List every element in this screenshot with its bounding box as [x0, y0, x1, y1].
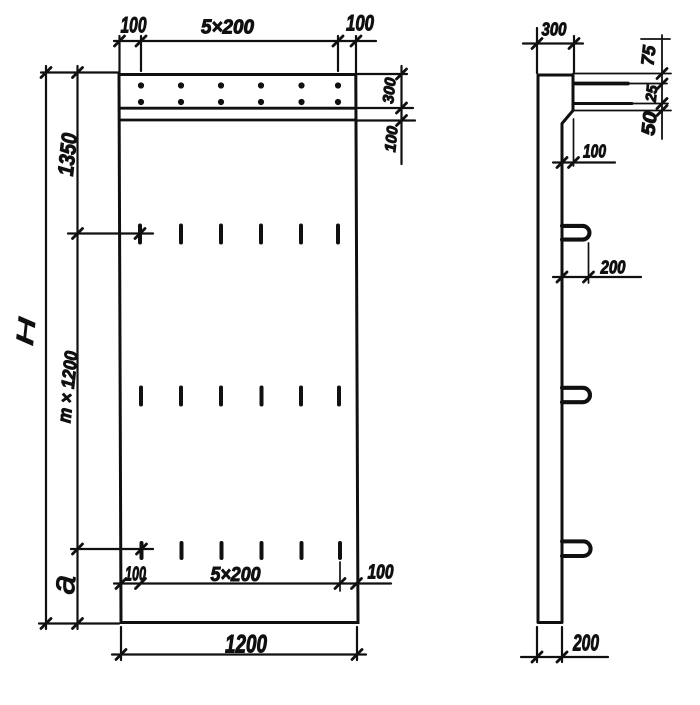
svg-text:5×200: 5×200 — [211, 564, 261, 586]
svg-text:1350: 1350 — [53, 131, 82, 177]
svg-text:100: 100 — [368, 562, 394, 584]
svg-text:75: 75 — [638, 43, 660, 66]
svg-text:200: 200 — [600, 258, 626, 278]
svg-text:25: 25 — [643, 84, 662, 104]
svg-text:100: 100 — [583, 142, 606, 162]
svg-text:a: a — [44, 573, 84, 596]
svg-text:50: 50 — [638, 110, 661, 137]
svg-text:100: 100 — [121, 13, 148, 38]
svg-text:5×200: 5×200 — [201, 17, 254, 39]
svg-text:300: 300 — [380, 76, 400, 104]
svg-text:200: 200 — [572, 630, 599, 656]
svg-text:300: 300 — [542, 20, 567, 40]
svg-text:H: H — [12, 315, 42, 347]
svg-text:100: 100 — [346, 11, 375, 36]
svg-text:100: 100 — [382, 125, 402, 153]
svg-text:100: 100 — [125, 564, 146, 586]
svg-text:1200: 1200 — [225, 631, 267, 659]
